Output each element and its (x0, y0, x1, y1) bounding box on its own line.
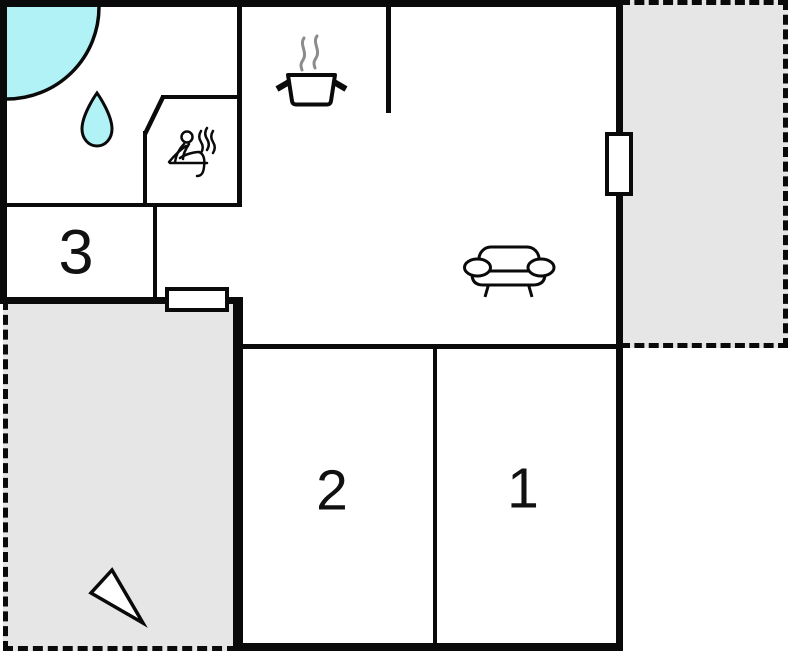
north-arrow-icon (91, 570, 143, 623)
sauna-chamfer-wall (145, 97, 163, 134)
sofa-armrest-right (528, 259, 554, 276)
sauna-bather-icon (169, 128, 215, 176)
fixtures-layer (0, 0, 790, 652)
bather-head (182, 132, 193, 143)
corner-bathtub-icon (7, 7, 99, 99)
stove-pot-icon (277, 36, 346, 105)
sofa-armrest-left (465, 259, 491, 276)
floor-plan: 3 2 1 (0, 0, 790, 652)
room-3-label: 3 (58, 222, 93, 285)
room-2-label: 2 (316, 463, 348, 520)
pot-body (288, 75, 335, 105)
water-drop-icon (82, 93, 112, 146)
sofa-icon (465, 247, 555, 297)
room-1-label: 1 (507, 461, 539, 518)
